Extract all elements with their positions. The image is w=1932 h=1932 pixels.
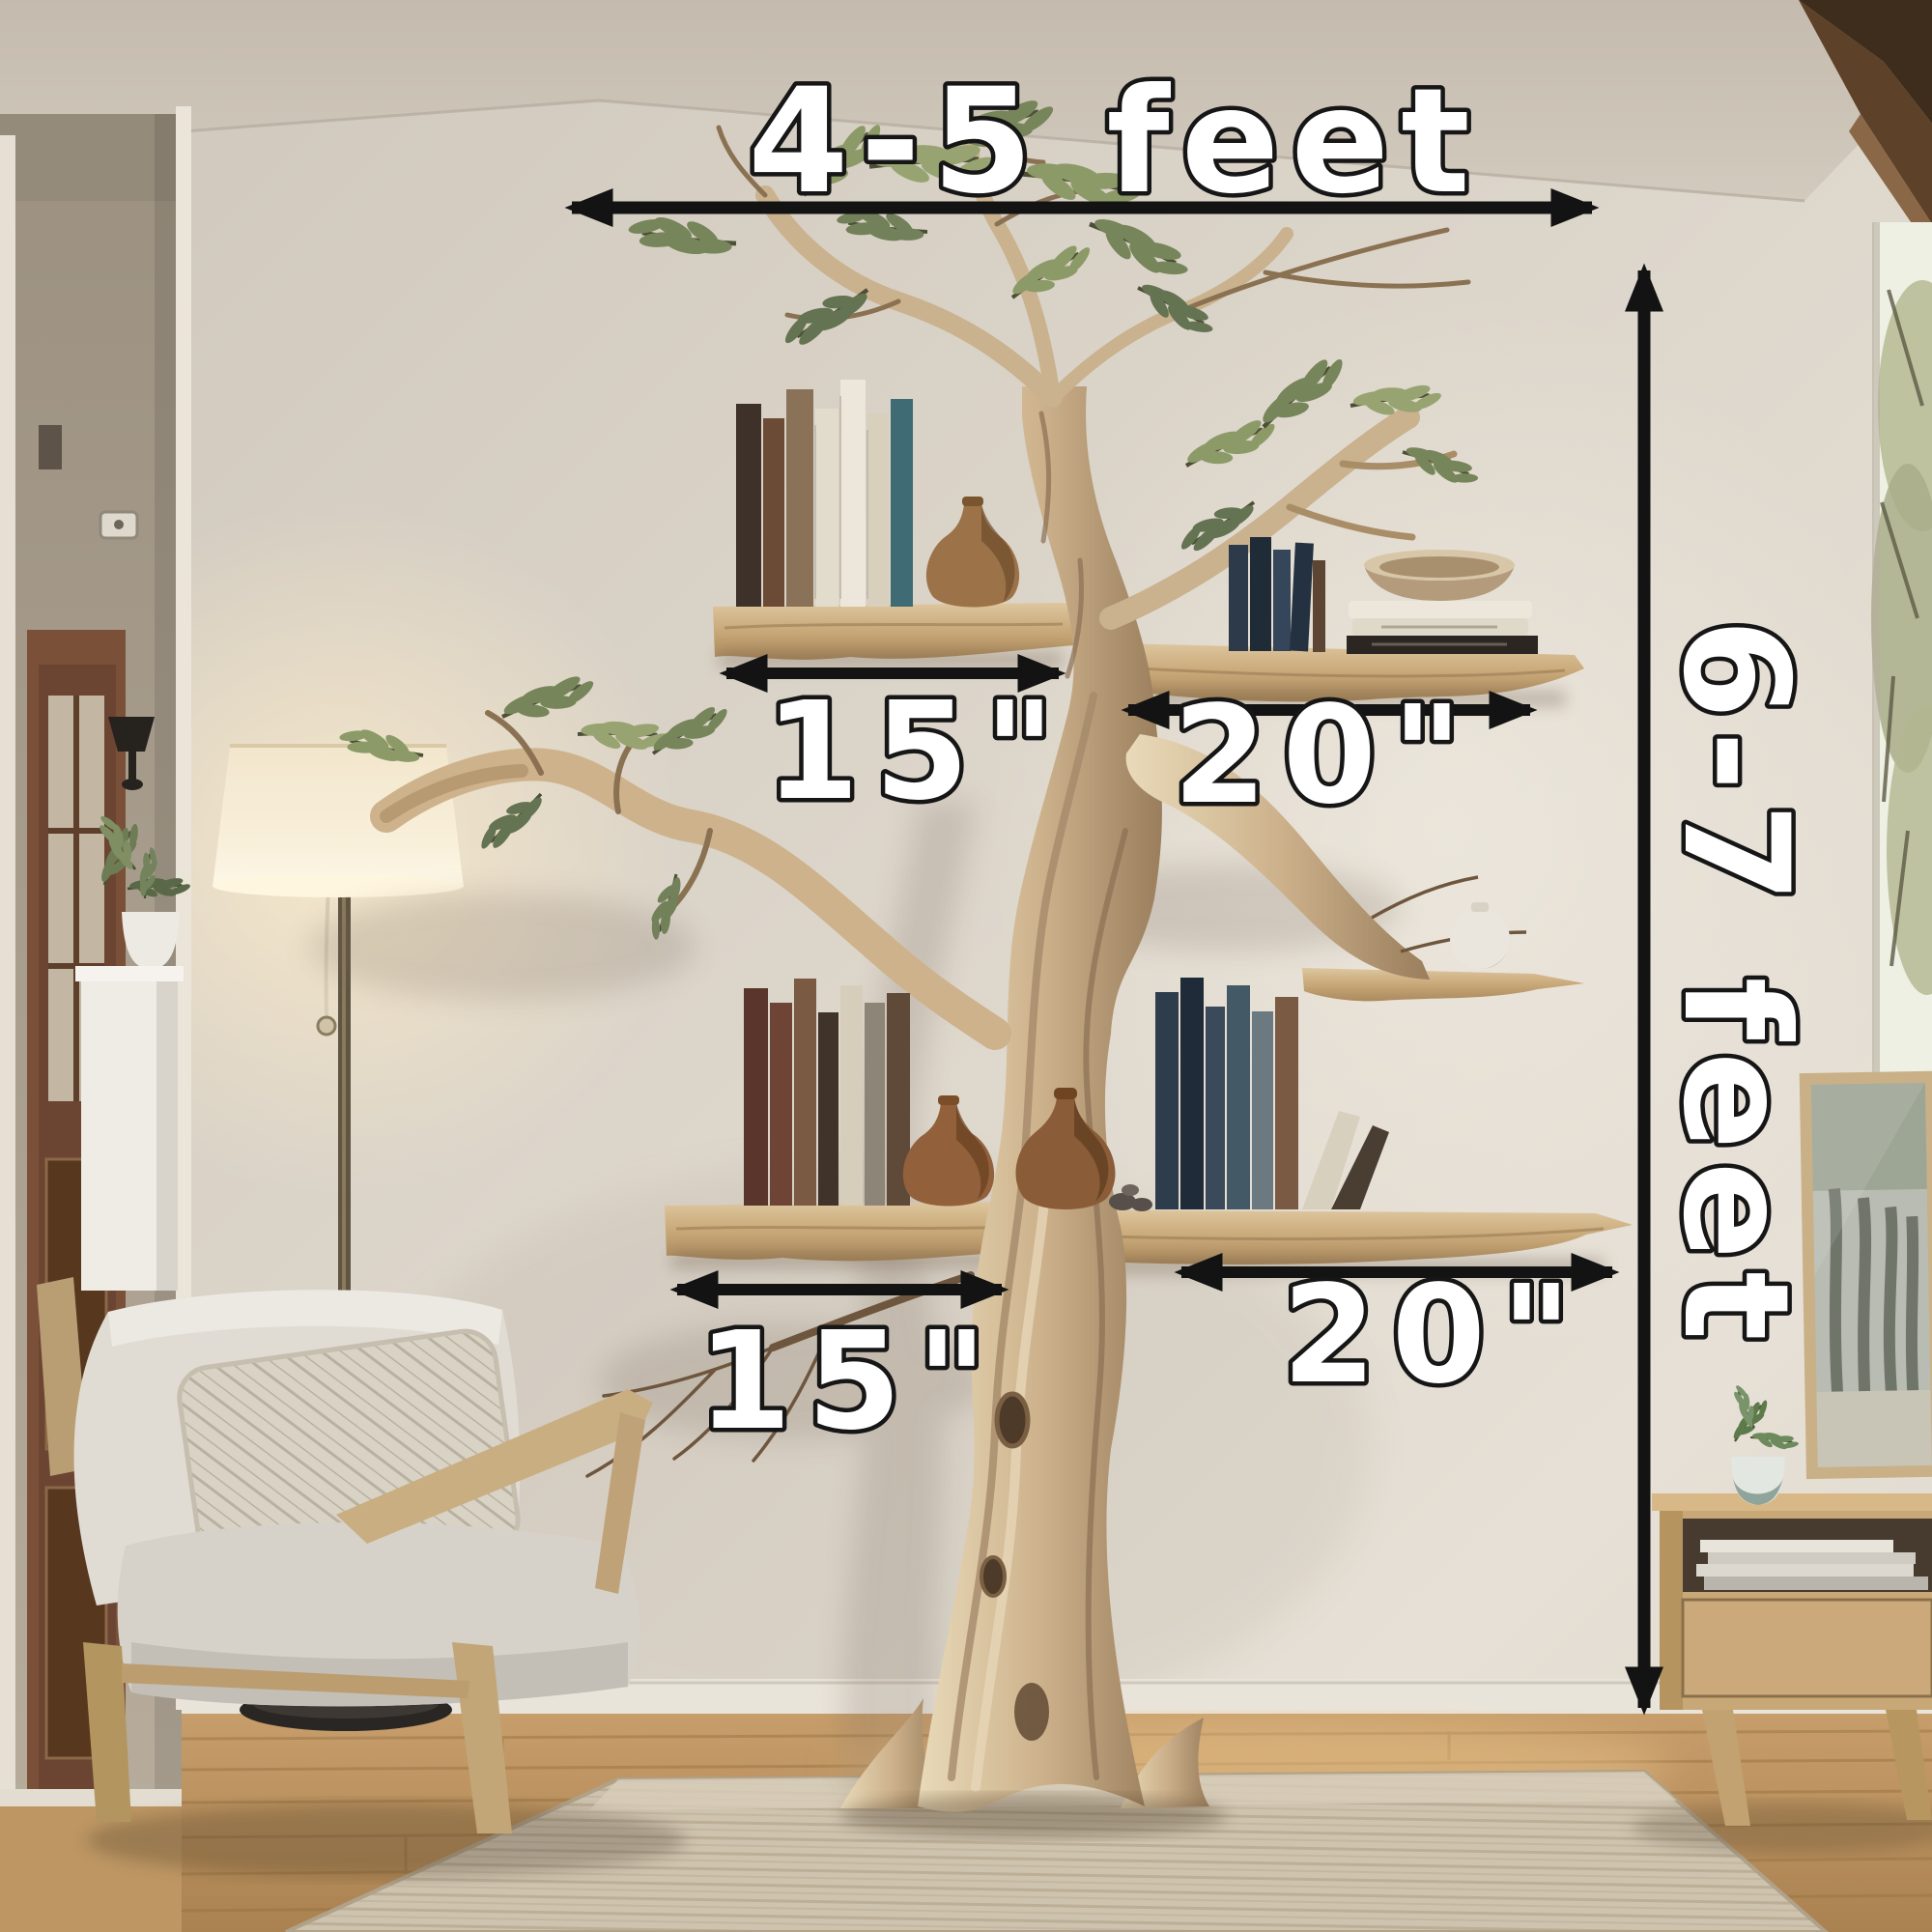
hallway-baseboard [0,1789,182,1808]
upper-left-shelf-label: 15" [765,673,1070,831]
lower-left-shelf [665,1202,1028,1261]
book-spine [1229,545,1248,651]
trunk-knot [981,1557,1005,1596]
book-spine [815,409,838,607]
book-spine [1250,537,1271,651]
side-table-top [1652,1493,1932,1511]
book-spine [1275,997,1298,1209]
lower-right-shelf-label: 20" [1282,1257,1587,1414]
book-spine [1155,992,1179,1209]
book-spine [1180,978,1204,1209]
stacked-book [1349,601,1532,618]
room-photo: 4-5 feet 6-7 feet 15" 20" 15" 20" [0,0,1932,1932]
book-spine [891,399,913,607]
hallway-picture [39,425,62,469]
lamp-pull-knob [318,1017,335,1035]
side-table-books [1696,1540,1928,1590]
book-spine [744,988,768,1206]
lamp-shade-bottom [213,874,464,897]
book-spine [1206,1007,1225,1209]
book-spine [1227,985,1250,1209]
trunk-hollow [1014,1683,1049,1741]
book-spine [818,1012,838,1206]
lamp-shade [213,746,464,887]
book-spine [865,1003,885,1206]
window [1871,222,1932,1082]
book-spine [1252,1011,1273,1209]
book-spine [736,404,761,607]
lower-left-shelf-label: 15" [697,1303,1003,1461]
book-spine [794,979,816,1206]
window-edge [1872,222,1880,1082]
console-top [75,966,184,981]
book-spine [840,380,866,607]
book-spine [786,389,813,607]
hallway-left-edge [0,135,15,1816]
upper-right-shelf-label: 20" [1173,677,1478,835]
tree-floor-shadow [840,1795,1227,1837]
hallway-soffit [0,114,182,201]
book-spine [840,985,863,1206]
side-table-drawer [1683,1600,1932,1696]
width-label: 4-5 feet [748,58,1482,226]
upper-right-book-stack [1347,601,1538,654]
book-spine [763,418,784,607]
book-spine [1313,560,1325,652]
book-spine [867,413,889,607]
book-spine [1273,550,1291,651]
height-label: 6-7 feet [1651,618,1819,1352]
scene-canvas: 4-5 feet 6-7 feet 15" 20" 15" 20" [0,0,1932,1932]
book-spine [770,1003,792,1206]
